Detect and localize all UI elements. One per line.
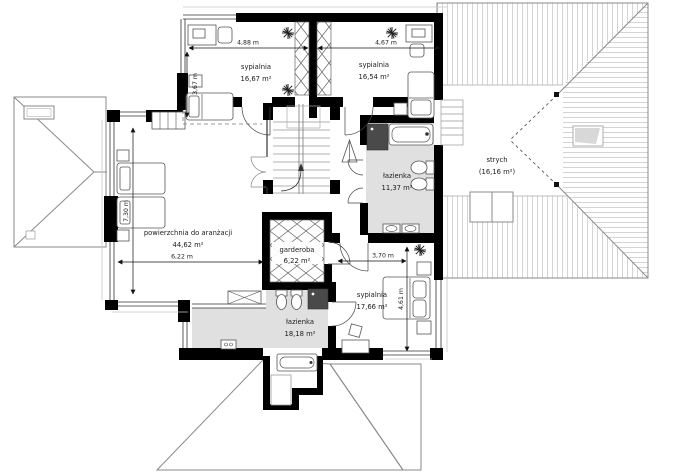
desk-icon	[342, 340, 369, 353]
closet-strip	[317, 22, 331, 95]
attic-label-name: strych	[486, 156, 507, 164]
dim-bedroom-top-left-width: 4,88 m	[237, 40, 259, 47]
chair-icon	[349, 324, 362, 337]
sink-icon	[402, 224, 419, 233]
closet-strip	[295, 22, 309, 95]
toilet-icon	[276, 290, 287, 310]
nightstand-icon	[417, 262, 431, 275]
bedroom-top-left-name: sypialnia	[241, 63, 271, 71]
dim-arrangement-depth: 7,30 m	[123, 200, 130, 222]
shower-icon	[367, 124, 388, 150]
dormer-window	[271, 375, 291, 405]
floor-plan-canvas: strych (16,16 m²)	[0, 0, 675, 474]
bed-icon	[186, 93, 233, 120]
nightstand-icon	[117, 230, 129, 241]
nightstand-icon	[394, 103, 407, 115]
dim-arrangement-width: 6,22 m	[171, 254, 193, 261]
arrangement-area-area: 44,62 m²	[173, 241, 204, 249]
roof-skylight	[573, 126, 603, 146]
bidet-icon	[411, 178, 434, 190]
washer-icon	[221, 340, 236, 349]
bathroom-bottom-area: 18,18 m²	[285, 330, 316, 338]
wardrobe-name: garderoba	[280, 246, 315, 254]
arrangement-area-name: powierzchnia do aranżacji	[144, 229, 232, 237]
nightstand-icon	[117, 150, 129, 161]
chimney	[492, 192, 513, 222]
dim-bedroom-top-left-depth: 3,67 m	[192, 73, 199, 95]
bedroom-top-right-name: sypialnia	[359, 61, 389, 69]
attic-label-area: (16,16 m²)	[479, 168, 516, 176]
bedroom-bottom-area: 17,66 m²	[357, 303, 388, 311]
sink-icon	[383, 224, 400, 233]
chair-icon	[218, 27, 232, 43]
chimney	[470, 192, 492, 222]
bathtub-icon	[277, 354, 317, 371]
bathroom-top-name: łazienka	[383, 172, 411, 180]
bed-icon	[408, 72, 434, 118]
west-garage-roof	[14, 97, 107, 247]
bedroom-top-right-area: 16,54 m²	[359, 73, 390, 81]
nightstand-icon	[417, 321, 431, 334]
chair-icon	[410, 44, 424, 57]
bed-icon	[117, 163, 165, 194]
bedroom-bottom-name: sypialnia	[357, 291, 387, 299]
bathroom-top-area: 11,37 m²	[382, 184, 413, 192]
cabinet-icon	[228, 291, 261, 304]
dim-bedroom-top-right-width: 4,67 m	[375, 40, 397, 47]
attic-access-steps	[441, 100, 463, 145]
desk-icon	[188, 25, 232, 45]
shower-icon	[308, 289, 328, 309]
bedroom-top-left-area: 16,67 m²	[241, 75, 272, 83]
chimney	[24, 106, 54, 119]
dim-bedroom-bottom-depth: 4,61 m	[398, 288, 405, 310]
wardrobe-icon	[152, 112, 185, 129]
bathtub-icon	[389, 124, 433, 145]
right-wing-roof: strych (16,16 m²)	[437, 3, 648, 278]
wardrobe-area: 6,22 m²	[284, 257, 311, 265]
double-bed-icon	[383, 277, 430, 319]
floor-plan-page: strych (16,16 m²)	[0, 0, 675, 474]
dim-bedroom-bottom-width: 3,70 m	[372, 253, 394, 260]
bathroom-bottom-name: łazienka	[286, 318, 314, 326]
toilet-icon	[411, 161, 434, 174]
bath-dormer	[263, 354, 323, 410]
bidet-icon	[291, 290, 302, 310]
